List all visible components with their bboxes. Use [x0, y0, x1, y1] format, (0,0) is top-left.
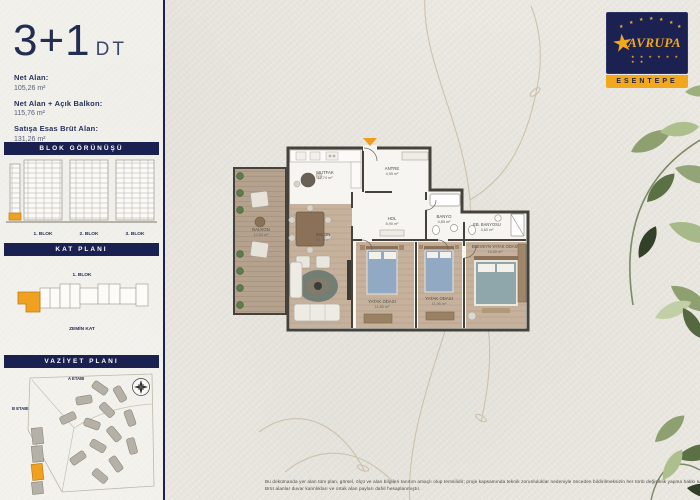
- compass-icon: [133, 379, 150, 396]
- brochure-page: 3+1DT Net Alan: 105,26 m² Net Alan + Açı…: [0, 0, 700, 500]
- area-specs: Net Alan: 105,26 m² Net Alan + Açık Balk…: [14, 66, 154, 143]
- room-name: EB. BANYOSU: [473, 222, 501, 227]
- section-header-site-plan: VAZİYET PLANI: [4, 355, 159, 368]
- dresser: [426, 312, 454, 320]
- room-area: 10,50 m²: [254, 233, 270, 237]
- entry-closet: [402, 152, 428, 160]
- tower-3: [116, 160, 154, 220]
- spec-label: Net Alan:: [14, 73, 154, 82]
- tv-unit: [347, 260, 351, 300]
- spec-label: Net Alan + Açık Balkon:: [14, 99, 154, 108]
- kitchen-table: [301, 173, 315, 187]
- disclaimer-line: Brüt alanlar duvar kalınlıkları ve ortak…: [265, 486, 421, 491]
- page-title: 3+1DT: [13, 16, 127, 66]
- star-icon: ★: [629, 20, 633, 26]
- block-elevation-diagram: 1. BLOK 2. BLOK 3. BLOK: [4, 158, 159, 242]
- room-balkon: [234, 168, 286, 314]
- unit-code: DT: [96, 39, 127, 60]
- coffee-table: [314, 282, 322, 290]
- logo-stars-row: ★ ★ ★ ★ ★ ★ ★ ★: [631, 54, 687, 64]
- block-label: 1. BLOK: [34, 231, 53, 237]
- section-header-floor-plan: KAT PLANI: [4, 243, 159, 256]
- phase-label: A ETABI: [68, 376, 84, 381]
- star-icon: ★: [639, 17, 643, 23]
- highlighted-building: [31, 463, 44, 480]
- leaf-cluster-corner: [650, 410, 700, 500]
- logo-brand-text: AVRUPA: [628, 35, 681, 51]
- spec-label: Satışa Esas Brüt Alan:: [14, 124, 154, 133]
- section-header-block-view: BLOK GÖRÜNÜŞÜ: [4, 142, 159, 155]
- star-icon: ★: [677, 24, 681, 30]
- balcony-armchair: [250, 191, 269, 208]
- floor-scale-strip: [10, 164, 20, 220]
- block-label: 2. BLOK: [80, 231, 99, 237]
- phase-label: B ETABI: [12, 406, 28, 411]
- sidebar: 3+1DT Net Alan: 105,26 m² Net Alan + Açı…: [0, 0, 165, 500]
- unit-type: 3+1: [13, 16, 91, 65]
- balcony-armchair: [250, 241, 269, 258]
- armchair: [316, 256, 330, 268]
- dresser: [364, 314, 392, 323]
- star-icon: ★: [669, 20, 673, 26]
- spec-value: 115,76 m²: [14, 110, 154, 117]
- balcony-table: [255, 217, 265, 227]
- room-area: 4,85 m²: [438, 220, 452, 224]
- room-name: MUTFAK: [316, 170, 334, 175]
- disclaimer-line: Bu dokümanda yer alan tüm plan, görsel, …: [265, 479, 700, 484]
- block-label: 3. BLOK: [126, 231, 145, 237]
- tower-2: [70, 160, 108, 220]
- highlighted-unit: [18, 292, 40, 312]
- spec-value: 105,26 m²: [14, 85, 154, 92]
- floor-plan: BALKON 10,50 m² MUTFAK 12,74 m² ANTRE 4,…: [230, 134, 532, 336]
- room-area: 15,60 m²: [488, 250, 504, 254]
- star-icon: ★: [659, 17, 663, 23]
- hall-console: [380, 230, 404, 236]
- room-area: 28,40 m²: [316, 238, 332, 242]
- star-icon: ★: [649, 16, 653, 22]
- room-name: BANYO: [436, 214, 452, 219]
- site-plan-diagram: A ETABI B ETABI: [4, 370, 159, 496]
- sofa: [294, 304, 340, 321]
- room-area: 12,74 m²: [318, 176, 334, 180]
- logo-location-band: ESENTEPE: [606, 75, 688, 88]
- room-name: EBEVEYN YATAK ODASI: [472, 244, 519, 249]
- room-name: ANTRE: [385, 166, 400, 171]
- floor-plate-block-label: 1. BLOK: [73, 272, 92, 278]
- armchair: [468, 312, 476, 320]
- room-name: YATAK ODASI: [368, 299, 396, 304]
- project-logo: ★ ★ ★ ★ ★ ★ ★ ★ AVRUPA ★ ★ ★ ★ ★ ★ ★ ★ E…: [606, 12, 688, 88]
- wardrobe: [518, 244, 526, 302]
- entry-marker-icon: [363, 138, 377, 146]
- tower-1: [24, 160, 62, 220]
- room-name: YATAK ODASI: [425, 296, 453, 301]
- room-area: 11,95 m²: [432, 302, 447, 306]
- sofa-2: [290, 262, 302, 298]
- room-area: 11,80 m²: [375, 305, 390, 309]
- room-area: 8,90 m²: [386, 222, 400, 226]
- site-roads: [32, 380, 152, 492]
- leaf-cluster-right: [627, 84, 700, 342]
- floor-label: ZEMİN KAT: [69, 325, 95, 332]
- bench: [482, 308, 510, 313]
- room-name: BALKON: [252, 227, 269, 232]
- highlighted-floor: [9, 213, 21, 220]
- room-area: 4,95 m²: [386, 172, 400, 176]
- floor-plate-units: [40, 284, 148, 308]
- room-name: SALON: [316, 232, 331, 237]
- room-name: HOL: [388, 216, 397, 221]
- floor-plate-diagram: 1. BLOK ZEMİN KAT: [4, 258, 159, 348]
- room-area: 4,60 m²: [481, 228, 495, 232]
